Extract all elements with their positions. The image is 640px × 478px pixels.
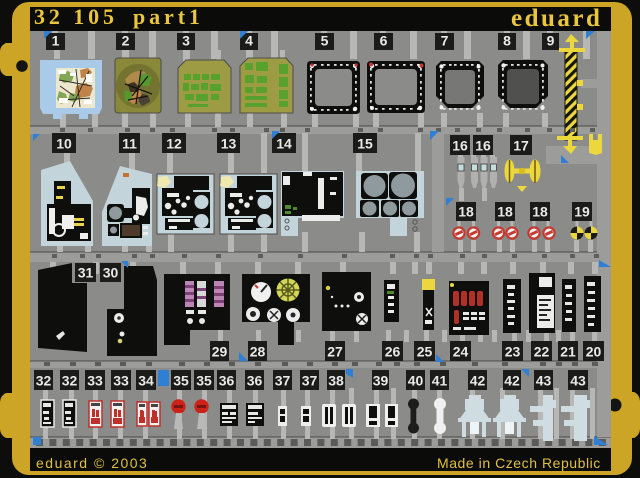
svg-text:23: 23 [505,344,521,360]
svg-text:Made in Czech Republic: Made in Czech Republic [437,455,601,471]
svg-text:eduard: eduard [511,5,602,32]
svg-text:35: 35 [196,373,212,389]
svg-text:14: 14 [276,136,292,152]
svg-text:33: 33 [87,373,103,389]
svg-text:15: 15 [357,136,373,152]
svg-text:24: 24 [453,344,469,360]
svg-text:eduard © 2003: eduard © 2003 [36,455,148,471]
svg-text:30: 30 [103,265,119,281]
svg-text:35: 35 [173,373,189,389]
svg-text:28: 28 [250,344,266,360]
svg-text:18: 18 [532,204,548,220]
svg-text:20: 20 [586,344,602,360]
svg-text:32 105: 32 105 [34,4,118,29]
svg-text:38: 38 [328,373,344,389]
svg-text:34: 34 [138,373,154,389]
svg-text:43: 43 [570,373,586,389]
svg-text:36: 36 [219,373,235,389]
svg-text:1: 1 [52,33,60,49]
svg-text:32: 32 [36,373,52,389]
svg-text:25: 25 [417,344,433,360]
svg-text:16: 16 [452,138,468,154]
svg-text:37: 37 [302,373,318,389]
svg-text:32: 32 [62,373,78,389]
svg-text:12: 12 [166,136,182,152]
svg-text:8: 8 [503,33,511,49]
svg-text:19: 19 [574,204,590,220]
svg-text:37: 37 [275,373,291,389]
svg-text:43: 43 [536,373,552,389]
svg-text:21: 21 [560,344,576,360]
svg-text:26: 26 [385,344,401,360]
svg-text:2: 2 [122,33,130,49]
svg-text:4: 4 [245,33,253,49]
svg-text:6: 6 [380,33,388,49]
svg-text:22: 22 [534,344,550,360]
svg-text:42: 42 [470,373,486,389]
svg-text:36: 36 [247,373,263,389]
svg-text:7: 7 [441,33,449,49]
svg-text:29: 29 [212,344,228,360]
svg-text:42: 42 [504,373,520,389]
svg-text:17: 17 [513,138,529,154]
svg-text:13: 13 [221,136,237,152]
svg-text:9: 9 [547,33,555,49]
svg-text:3: 3 [182,33,190,49]
svg-text:16: 16 [475,138,491,154]
svg-text:31: 31 [78,265,94,281]
svg-text:39: 39 [373,373,389,389]
svg-text:18: 18 [497,204,513,220]
svg-text:18: 18 [458,204,474,220]
svg-text:41: 41 [432,373,448,389]
svg-text:10: 10 [56,136,72,152]
svg-text:40: 40 [408,373,424,389]
svg-text:33: 33 [113,373,129,389]
svg-text:5: 5 [321,33,329,49]
svg-text:part1: part1 [133,4,204,29]
svg-text:11: 11 [122,136,137,152]
svg-text:27: 27 [327,344,343,360]
